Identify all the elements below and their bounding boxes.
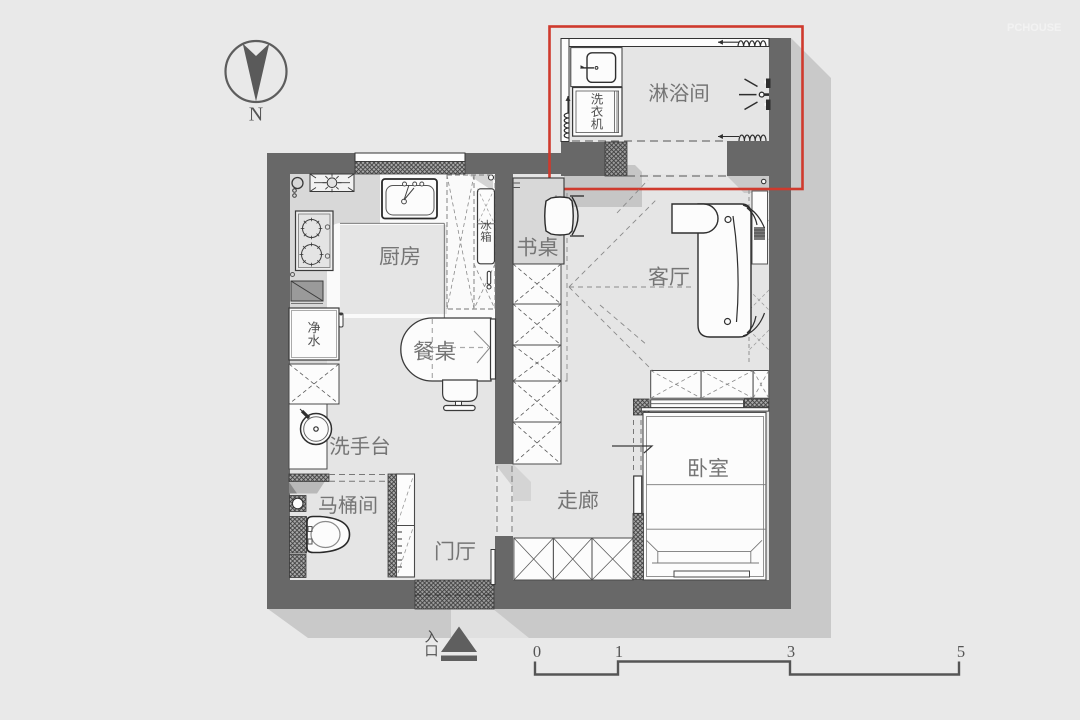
- svg-text:N: N: [249, 104, 263, 126]
- svg-text:PCHOUSE: PCHOUSE: [1007, 22, 1061, 34]
- svg-text:0: 0: [533, 642, 541, 661]
- svg-text:3: 3: [787, 642, 795, 661]
- svg-text:5: 5: [957, 642, 965, 661]
- svg-text:1: 1: [615, 642, 623, 661]
